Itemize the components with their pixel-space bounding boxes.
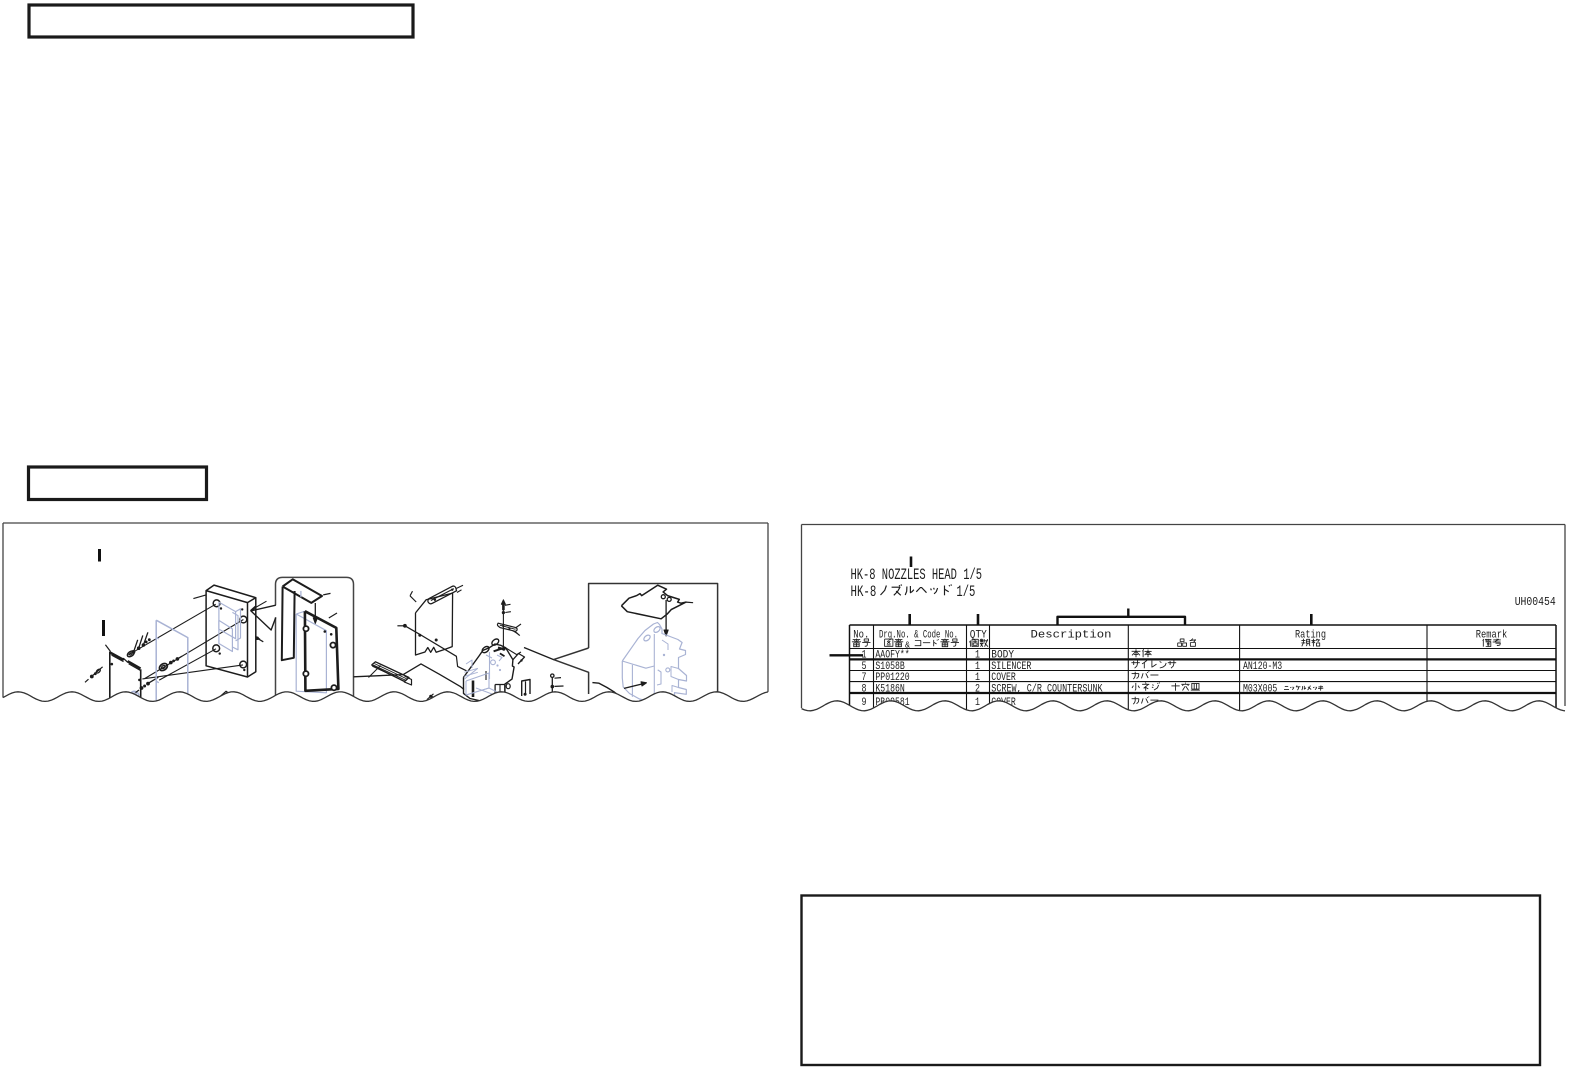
svg-text:1: 1 <box>975 672 980 684</box>
svg-text:7: 7 <box>862 672 867 684</box>
svg-text:9: 9 <box>862 697 867 709</box>
svg-text:K5186N: K5186N <box>875 683 904 695</box>
svg-text:Remark: Remark <box>1476 630 1508 642</box>
svg-text:1: 1 <box>975 697 980 709</box>
svg-text:Rating: Rating <box>1295 630 1326 642</box>
svg-text:1/5: 1/5 <box>956 583 975 601</box>
svg-text:AN120-M3: AN120-M3 <box>1243 661 1282 673</box>
svg-text:COVER: COVER <box>991 672 1016 684</box>
svg-text:Description: Description <box>1031 630 1112 642</box>
svg-text:UH00454: UH00454 <box>1515 596 1556 609</box>
svg-text:M03X005: M03X005 <box>1243 683 1277 695</box>
svg-text:8: 8 <box>862 683 867 695</box>
svg-text:HK-8: HK-8 <box>851 583 877 601</box>
svg-text:SCREW, C/R COUNTERSUNK: SCREW, C/R COUNTERSUNK <box>991 683 1102 695</box>
svg-text:&: & <box>905 639 910 650</box>
svg-text:HK-8 NOZZLES HEAD 1/5: HK-8 NOZZLES HEAD 1/5 <box>851 566 983 584</box>
svg-text:PP01220: PP01220 <box>875 672 909 684</box>
svg-text:2: 2 <box>975 683 980 695</box>
